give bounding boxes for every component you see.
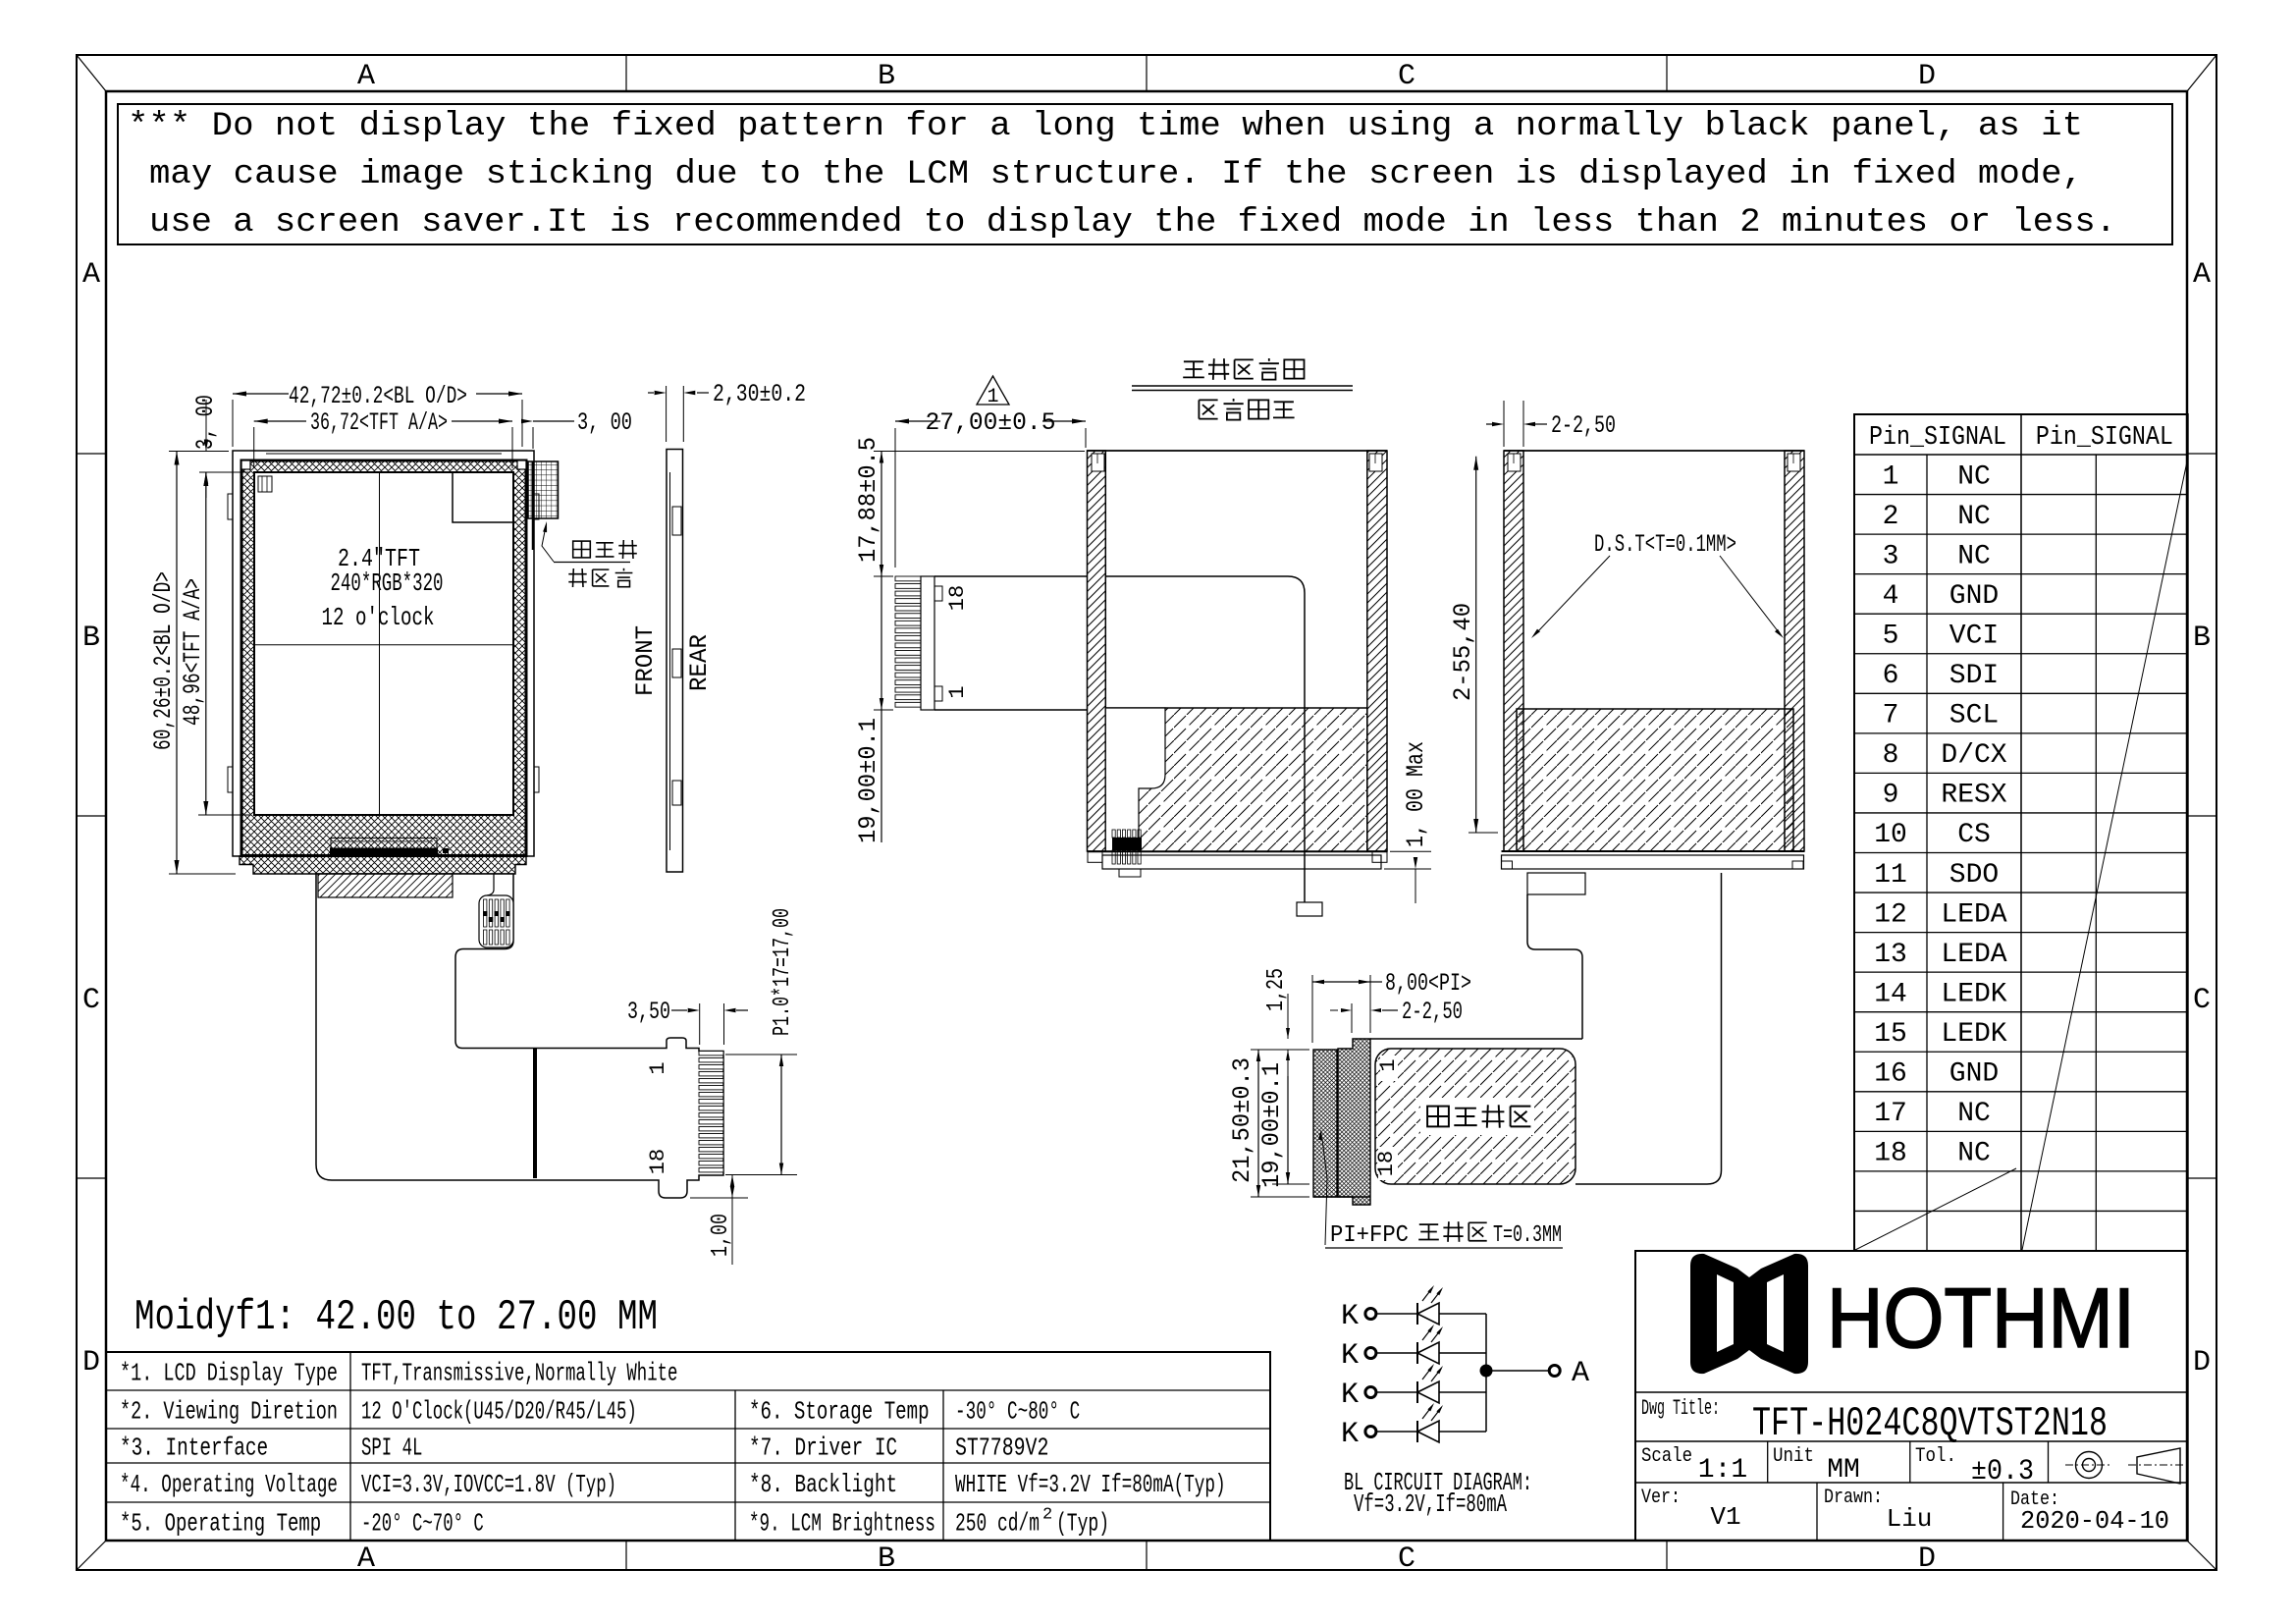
svg-text:1: 1 [646, 1061, 670, 1074]
svg-text:Dwg Title:: Dwg Title: [1641, 1396, 1720, 1421]
svg-text:17: 17 [1874, 1099, 1907, 1129]
svg-text:K: K [1341, 1379, 1359, 1412]
svg-text:Tol.: Tol. [1915, 1445, 1956, 1468]
svg-text:LEDA: LEDA [1941, 940, 2006, 970]
svg-text:42,72±0.2<BL O/D>: 42,72±0.2<BL O/D> [289, 382, 467, 410]
svg-text:48,96<TFT A/A>: 48,96<TFT A/A> [179, 578, 207, 726]
svg-text:3,50: 3,50 [627, 998, 670, 1026]
svg-text:Vf=3.2V,If=80mA: Vf=3.2V,If=80mA [1354, 1489, 1507, 1519]
svg-text:NC: NC [1957, 1139, 1991, 1169]
svg-text:VCI=3.3V,IOVCC=1.8V (Typ): VCI=3.3V,IOVCC=1.8V (Typ) [361, 1470, 616, 1499]
svg-text:D: D [1918, 60, 1936, 93]
svg-text:C: C [2193, 984, 2211, 1017]
svg-text:NC: NC [1957, 461, 1991, 492]
svg-text:1: 1 [1883, 461, 1899, 492]
svg-text:LEDK: LEDK [1941, 979, 2006, 1009]
svg-text:21,50±0.3: 21,50±0.3 [1228, 1057, 1256, 1183]
svg-text:*2. Viewing Diretion: *2. Viewing Diretion [120, 1397, 338, 1427]
svg-text:1:1: 1:1 [1698, 1455, 1747, 1486]
svg-text:9: 9 [1883, 781, 1899, 811]
svg-text:3, 00: 3, 00 [191, 395, 220, 450]
svg-text:*1. LCD Display Type: *1. LCD Display Type [120, 1359, 338, 1388]
svg-text:18: 18 [1374, 1151, 1399, 1176]
svg-text:Scale: Scale [1641, 1445, 1692, 1468]
svg-text:2,30±0.2: 2,30±0.2 [713, 380, 806, 408]
svg-text:4: 4 [1883, 581, 1899, 612]
svg-text:NC: NC [1957, 1099, 1991, 1129]
svg-text:K: K [1341, 1418, 1359, 1451]
svg-text:*6. Storage Temp: *6. Storage Temp [749, 1397, 930, 1427]
svg-text:1, 00 Max: 1, 00 Max [1402, 741, 1430, 847]
svg-text:D: D [1918, 1542, 1936, 1576]
svg-text:SCL: SCL [1949, 701, 1999, 731]
svg-text:HOTHMI: HOTHMI [1827, 1271, 2135, 1366]
svg-text:-30° C~80° C: -30° C~80° C [955, 1397, 1080, 1427]
svg-text:3, 00: 3, 00 [577, 408, 632, 437]
svg-text:7: 7 [1883, 701, 1899, 731]
svg-text:D: D [82, 1346, 100, 1380]
svg-text:1,00: 1,00 [708, 1214, 734, 1257]
svg-text:60,26±0.2<BL O/D>: 60,26±0.2<BL O/D> [149, 571, 178, 750]
svg-text:6: 6 [1883, 661, 1899, 691]
svg-text:SDI: SDI [1949, 661, 1999, 691]
svg-text:15: 15 [1874, 1019, 1907, 1050]
svg-text:D.S.T<T=0.1MM>: D.S.T<T=0.1MM> [1594, 530, 1736, 559]
svg-text:REAR: REAR [685, 634, 714, 691]
svg-text:*8. Backlight: *8. Backlight [749, 1470, 897, 1499]
svg-text:11: 11 [1874, 860, 1907, 891]
svg-text:C: C [1398, 1542, 1415, 1576]
svg-text:A: A [357, 1542, 375, 1576]
svg-text:12 O'Clock(U45/D20/R45/L45): 12 O'Clock(U45/D20/R45/L45) [361, 1397, 637, 1427]
svg-text:Drawn:: Drawn: [1824, 1487, 1883, 1509]
svg-text:NC: NC [1957, 502, 1991, 532]
svg-text:B: B [878, 60, 895, 93]
svg-text:19,00±0.1: 19,00±0.1 [1257, 1062, 1286, 1188]
svg-text:(Typ): (Typ) [1056, 1509, 1109, 1539]
svg-text:A: A [1572, 1357, 1589, 1390]
svg-text:18: 18 [646, 1149, 670, 1174]
svg-text:LEDA: LEDA [1941, 899, 2006, 930]
svg-text:3: 3 [1883, 541, 1899, 571]
svg-text:2020-04-10: 2020-04-10 [2020, 1506, 2169, 1536]
svg-text:T=0.3MM: T=0.3MM [1493, 1222, 1562, 1249]
svg-text:Moidyf1: 42.00 to 27.00 MM: Moidyf1: 42.00 to 27.00 MM [134, 1293, 658, 1342]
svg-text:GND: GND [1949, 581, 1999, 612]
svg-text:Liu: Liu [1887, 1504, 1933, 1534]
svg-text:FRONT: FRONT [631, 625, 660, 696]
svg-text:27,00±0.5: 27,00±0.5 [926, 408, 1056, 437]
svg-text:-20° C~70° C: -20° C~70° C [361, 1509, 484, 1539]
svg-text:use a screen saver.It is recom: use a screen saver.It is recommended to … [149, 204, 2116, 242]
svg-text:19,00±0.1: 19,00±0.1 [854, 718, 882, 843]
svg-text:*7. Driver IC: *7. Driver IC [749, 1434, 897, 1463]
svg-text:SDO: SDO [1949, 860, 1999, 891]
svg-text:12 o'clock: 12 o'clock [322, 603, 435, 632]
svg-text:1,25: 1,25 [1263, 968, 1290, 1011]
svg-text:B: B [2193, 622, 2211, 655]
svg-text:18: 18 [1874, 1139, 1907, 1169]
svg-text:*** Do not display the fixed p: *** Do not display the fixed pattern for… [128, 108, 2083, 145]
svg-text:2-2,50: 2-2,50 [1551, 411, 1616, 440]
svg-text:MM: MM [1827, 1455, 1860, 1486]
svg-text:B: B [878, 1542, 895, 1576]
svg-text:Unit: Unit [1773, 1445, 1814, 1468]
svg-text:1: 1 [987, 386, 998, 408]
svg-text:TFT-H024C8QVTST2N18: TFT-H024C8QVTST2N18 [1752, 1400, 2108, 1447]
svg-text:*5. Operating Temp: *5. Operating Temp [120, 1509, 321, 1539]
svg-text:17,88±0.5: 17,88±0.5 [854, 437, 882, 563]
svg-text:VCI: VCI [1949, 621, 1999, 651]
svg-text:NC: NC [1957, 541, 1991, 571]
svg-text:P1.0*17=17,00: P1.0*17=17,00 [770, 908, 796, 1036]
svg-text:14: 14 [1874, 979, 1907, 1009]
svg-text:Ver:: Ver: [1641, 1487, 1681, 1509]
svg-text:WHITE Vf=3.2V If=80mA(Typ): WHITE Vf=3.2V If=80mA(Typ) [955, 1470, 1226, 1499]
svg-text:250 cd/m: 250 cd/m [955, 1509, 1040, 1539]
svg-text:8: 8 [1883, 740, 1899, 771]
svg-text:5: 5 [1883, 621, 1899, 651]
svg-text:TFT,Transmissive,Normally Whit: TFT,Transmissive,Normally White [361, 1359, 677, 1388]
svg-text:PI+FPC: PI+FPC [1330, 1222, 1409, 1249]
svg-text:may cause image sticking due t: may cause image sticking due to the LCM … [149, 156, 2083, 193]
svg-text:C: C [1398, 60, 1415, 93]
svg-text:*3. Interface: *3. Interface [120, 1434, 268, 1463]
svg-text:2-55,40: 2-55,40 [1449, 603, 1477, 701]
svg-text:K: K [1341, 1300, 1359, 1333]
svg-text:A: A [357, 60, 375, 93]
svg-text:36,72<TFT A/A>: 36,72<TFT A/A> [310, 408, 448, 437]
svg-text:Pin_SIGNAL: Pin_SIGNAL [2036, 423, 2173, 453]
svg-text:LEDK: LEDK [1941, 1019, 2006, 1050]
svg-text:C: C [82, 984, 100, 1017]
svg-text:18: 18 [945, 585, 970, 611]
svg-text:8,00<PI>: 8,00<PI> [1385, 969, 1471, 998]
svg-text:SPI 4L: SPI 4L [361, 1434, 422, 1463]
svg-text:*4. Operating Voltage: *4. Operating Voltage [120, 1470, 338, 1499]
svg-text:2: 2 [1042, 1506, 1052, 1525]
svg-text:Pin_SIGNAL: Pin_SIGNAL [1869, 423, 2006, 453]
svg-text:ST7789V2: ST7789V2 [955, 1434, 1048, 1463]
svg-text:A: A [82, 258, 100, 292]
svg-text:GND: GND [1949, 1059, 1999, 1090]
svg-text:16: 16 [1874, 1059, 1907, 1090]
svg-text:D/CX: D/CX [1941, 740, 2006, 771]
svg-text:V1: V1 [1710, 1502, 1740, 1532]
svg-text:A: A [2193, 258, 2211, 292]
svg-text:CS: CS [1957, 820, 1991, 850]
svg-text:K: K [1341, 1339, 1359, 1373]
svg-text:D: D [2193, 1346, 2211, 1380]
svg-text:2: 2 [1883, 502, 1899, 532]
svg-text:1: 1 [945, 685, 970, 698]
svg-text:12: 12 [1874, 899, 1907, 930]
svg-text:10: 10 [1874, 820, 1907, 850]
svg-text:RESX: RESX [1941, 781, 2006, 811]
svg-text:1: 1 [1376, 1058, 1401, 1071]
svg-text:240*RGB*320: 240*RGB*320 [331, 568, 444, 598]
svg-text:13: 13 [1874, 940, 1907, 970]
svg-text:*9. LCM Brightness: *9. LCM Brightness [749, 1509, 935, 1539]
svg-text:2-2,50: 2-2,50 [1402, 998, 1463, 1026]
svg-text:B: B [82, 622, 100, 655]
